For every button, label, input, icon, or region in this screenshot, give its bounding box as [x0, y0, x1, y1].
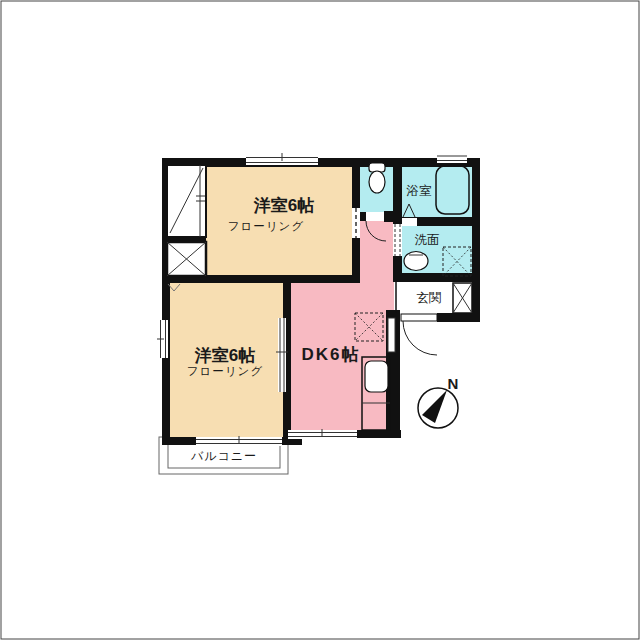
floor-plan-canvas: N 洋室6帖 フローリング 洋室6帖 フローリング DK6帖 浴室 洗面 玄関 … [0, 0, 640, 640]
floor-plan-image: N 洋室6帖 フローリング 洋室6帖 フローリング DK6帖 浴室 洗面 玄関 … [0, 0, 640, 640]
bedroom-bottom-floor-note: フローリング [187, 365, 263, 377]
window-dk-east [388, 318, 395, 352]
doorway-washroom [393, 224, 402, 256]
bedroom-bottom-label: 洋室6帖 [194, 346, 255, 365]
bath-label: 浴室 [406, 184, 433, 198]
window-bottom-bedroom [196, 436, 282, 446]
shoe-cabinet-icon [453, 283, 472, 313]
window-bottom-dk [288, 429, 357, 439]
compass-north-label: N [448, 375, 459, 392]
bedroom-top-label: 洋室6帖 [253, 196, 314, 215]
washroom-label: 洗面 [415, 233, 440, 247]
washbasin-icon [404, 252, 428, 271]
window-left-bedroom [157, 320, 168, 358]
dk-label: DK6帖 [301, 345, 360, 364]
entrance-label: 玄関 [417, 291, 442, 305]
closet-icon [167, 242, 206, 276]
storage-icon [167, 165, 206, 237]
balcony-label: バルコニー [190, 449, 257, 463]
toilet-icon [369, 163, 385, 193]
window-top-bath [437, 154, 467, 163]
doorway-bedroom-top [352, 208, 360, 238]
bedroom-top-floor-note: フローリング [228, 220, 304, 232]
